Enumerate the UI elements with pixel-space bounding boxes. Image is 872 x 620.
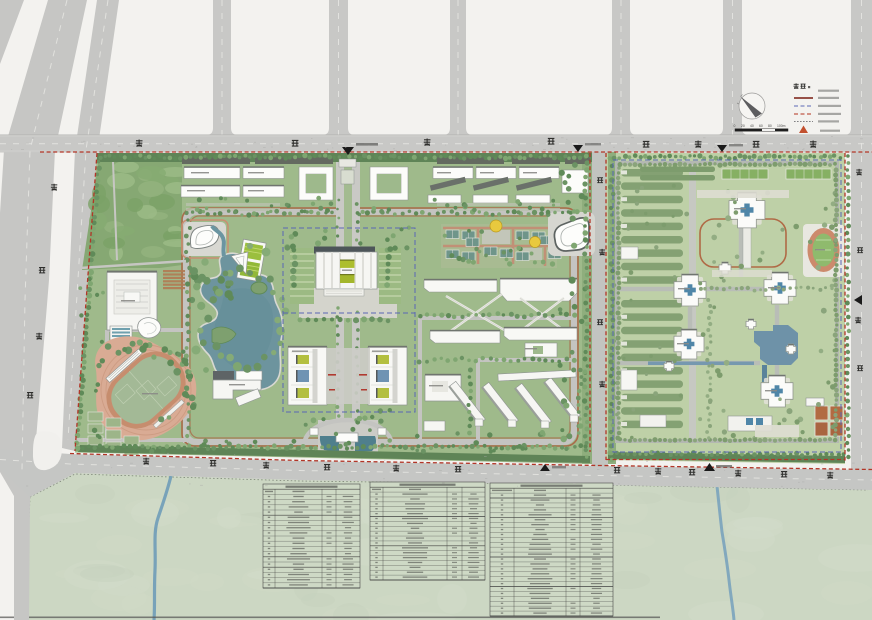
svg-text:80: 80 [768,124,772,128]
svg-text:0: 0 [734,124,736,128]
svg-text:40: 40 [750,124,754,128]
svg-text:20: 20 [741,124,745,128]
svg-text:60: 60 [759,124,763,128]
svg-text:100m: 100m [777,124,786,128]
